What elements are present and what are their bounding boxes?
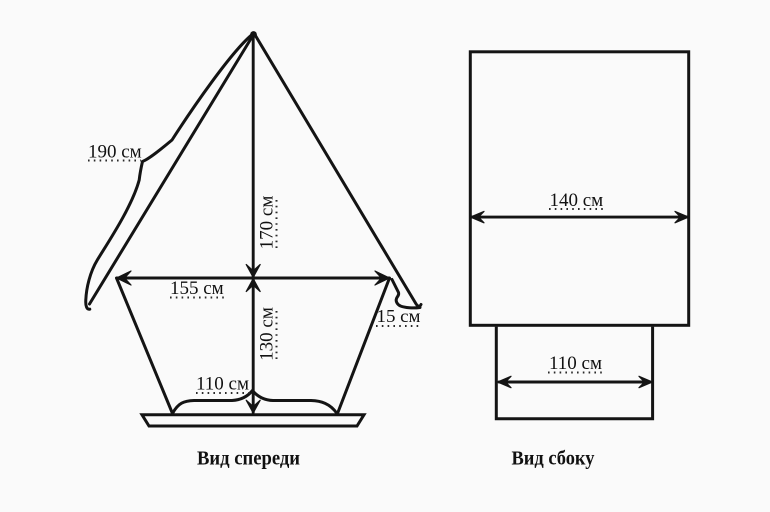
- svg-text:190 см: 190 см: [88, 142, 142, 163]
- svg-text:110 см: 110 см: [549, 353, 602, 374]
- svg-text:170 см: 170 см: [257, 196, 278, 250]
- svg-text:130 см: 130 см: [257, 307, 278, 361]
- svg-text:Вид сбоку: Вид сбоку: [512, 448, 595, 470]
- svg-text:110 см: 110 см: [196, 374, 249, 395]
- svg-text:140 см: 140 см: [550, 190, 604, 211]
- svg-text:Вид спереди: Вид спереди: [197, 448, 300, 470]
- svg-text:15 см: 15 см: [377, 306, 421, 326]
- svg-text:155 см: 155 см: [170, 278, 224, 299]
